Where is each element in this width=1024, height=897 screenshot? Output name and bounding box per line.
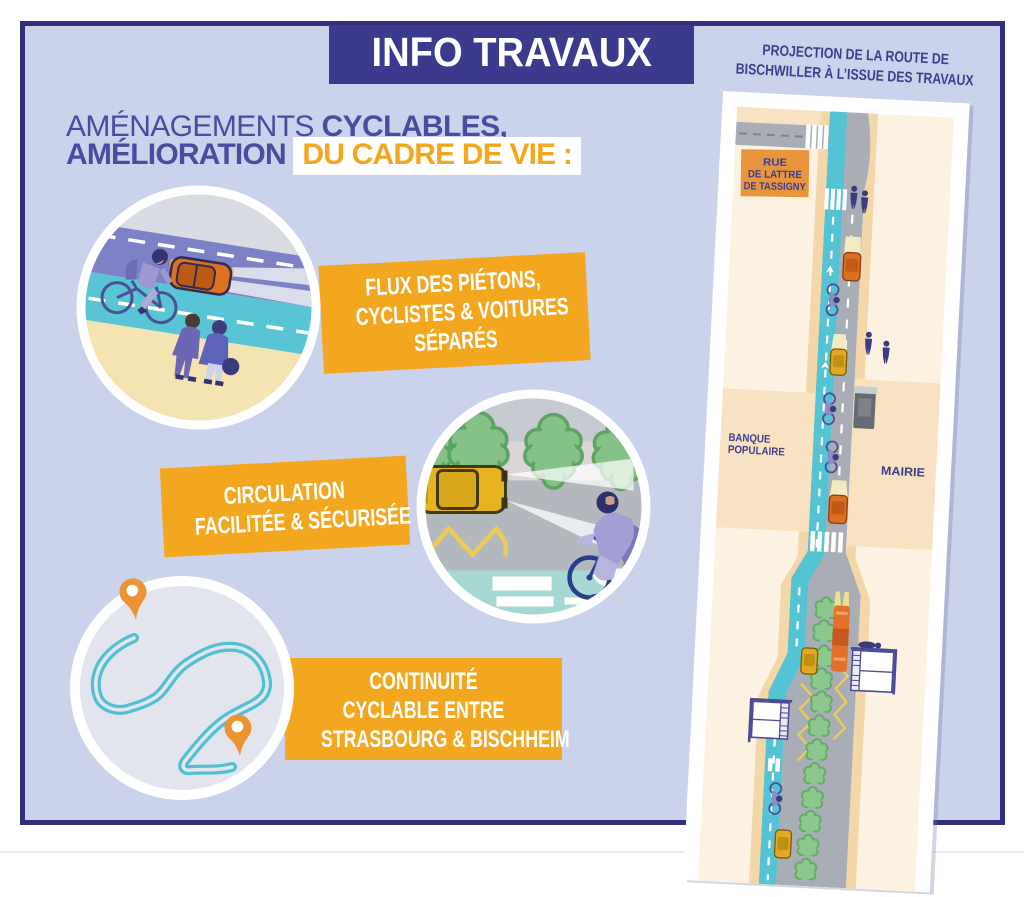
svg-text:DE TASSIGNY: DE TASSIGNY	[744, 180, 806, 193]
svg-text:DE LATTRE: DE LATTRE	[748, 168, 802, 181]
svg-text:RUE: RUE	[763, 157, 787, 169]
svg-text:MAIRIE: MAIRIE	[881, 463, 926, 479]
